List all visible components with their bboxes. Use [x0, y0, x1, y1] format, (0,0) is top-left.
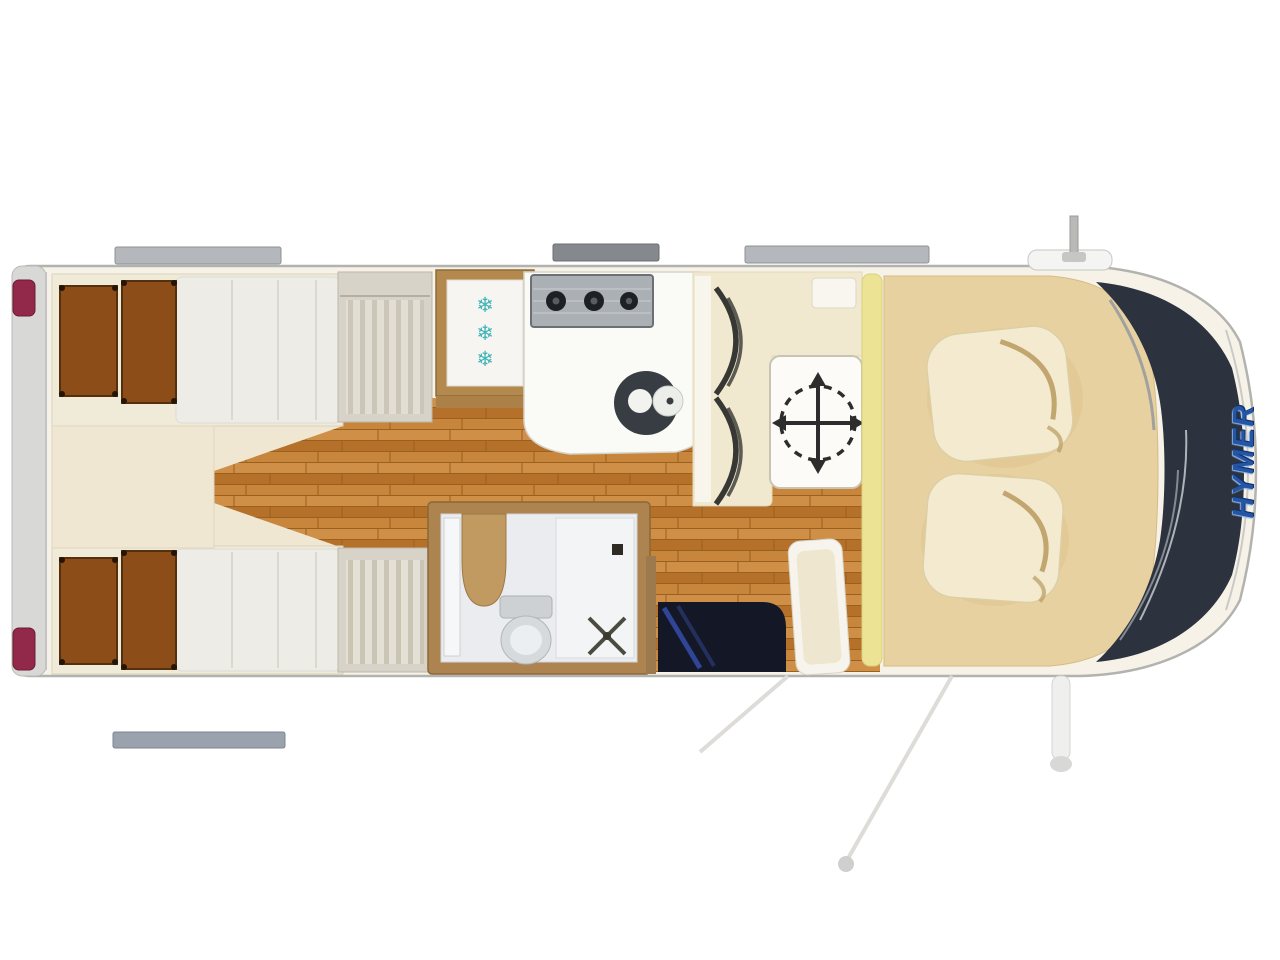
bathroom — [428, 502, 656, 674]
washbasin-vanity — [462, 514, 506, 606]
bottom-window-bar-rear — [113, 732, 285, 748]
snowflake-icon: ❄ — [476, 293, 494, 317]
snowflake-icon: ❄ — [476, 321, 494, 345]
antenna-base — [1062, 252, 1086, 262]
bed-center-cabinet — [52, 426, 214, 548]
tail-light-top — [13, 280, 35, 316]
roof-vent-kitchen — [553, 244, 659, 261]
divider-wall — [862, 274, 882, 666]
entry-step-outside — [1052, 676, 1070, 760]
cab-seat-driver — [924, 323, 1077, 465]
rear-bumper — [12, 266, 46, 676]
cab — [884, 276, 1158, 666]
roof-window-bar-dinette — [745, 246, 929, 263]
shower-tray — [556, 518, 634, 658]
fridge-ledge — [436, 396, 534, 408]
faucet-icon — [667, 398, 674, 405]
wardrobe-top-hanging-clothes — [346, 300, 424, 414]
floorplan-canvas: ❄ ❄ ❄ — [0, 0, 1280, 960]
toilet — [500, 596, 552, 664]
pillow-top-a — [60, 286, 117, 396]
roof-window-bar-rear — [115, 247, 281, 264]
door-swing-lines — [700, 676, 952, 862]
snowflake-icon: ❄ — [476, 347, 494, 371]
pillow-bottom-a — [60, 558, 117, 664]
wardrobe-bottom-hanging-clothes — [346, 560, 424, 664]
entry-mat — [658, 602, 786, 672]
floorplan-svg: ❄ ❄ ❄ — [0, 0, 1280, 960]
cab-seat-passenger — [921, 471, 1065, 604]
bench-edge-strip — [695, 276, 711, 502]
door-swing-foot — [838, 856, 854, 872]
pillow-top-b — [122, 281, 176, 403]
bathroom-hinge — [612, 544, 623, 555]
entry-side-seat — [787, 538, 850, 675]
stove-burners — [546, 291, 638, 311]
bathroom-side-wall — [646, 556, 656, 674]
entry-step-foot — [1050, 756, 1072, 772]
tv-cabinet — [812, 278, 856, 308]
pillow-bottom-b — [122, 551, 176, 669]
tail-light-bottom — [13, 628, 35, 670]
bathroom-door — [444, 518, 460, 656]
